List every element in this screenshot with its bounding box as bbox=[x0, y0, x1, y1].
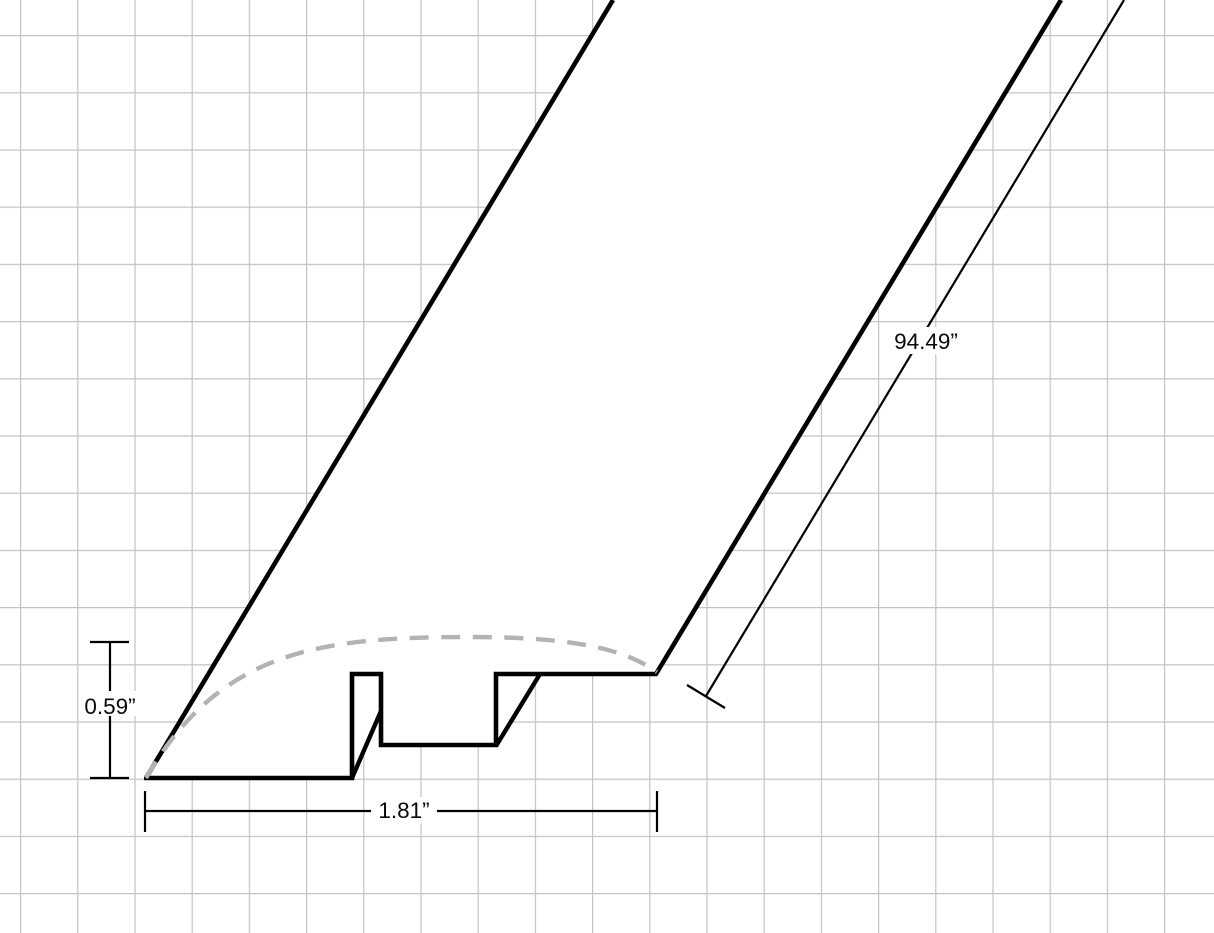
molding-profile-drawing: 0.59” 1.81” 94.49” bbox=[0, 0, 1214, 933]
height-dim-label: 0.59” bbox=[84, 694, 135, 719]
technical-drawing-canvas: 0.59” 1.81” 94.49” bbox=[0, 0, 1214, 933]
width-dim-label: 1.81” bbox=[378, 798, 429, 823]
length-dim-label: 94.49” bbox=[894, 329, 958, 354]
